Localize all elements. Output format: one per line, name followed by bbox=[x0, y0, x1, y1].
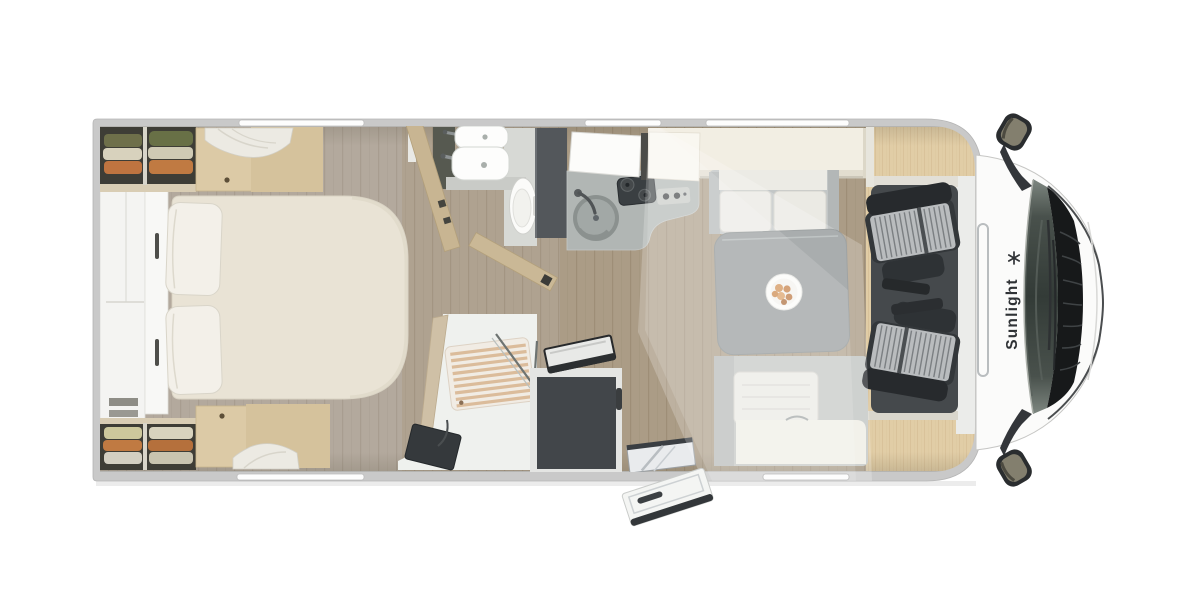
svg-text:Sunlight: Sunlight bbox=[1004, 278, 1021, 350]
